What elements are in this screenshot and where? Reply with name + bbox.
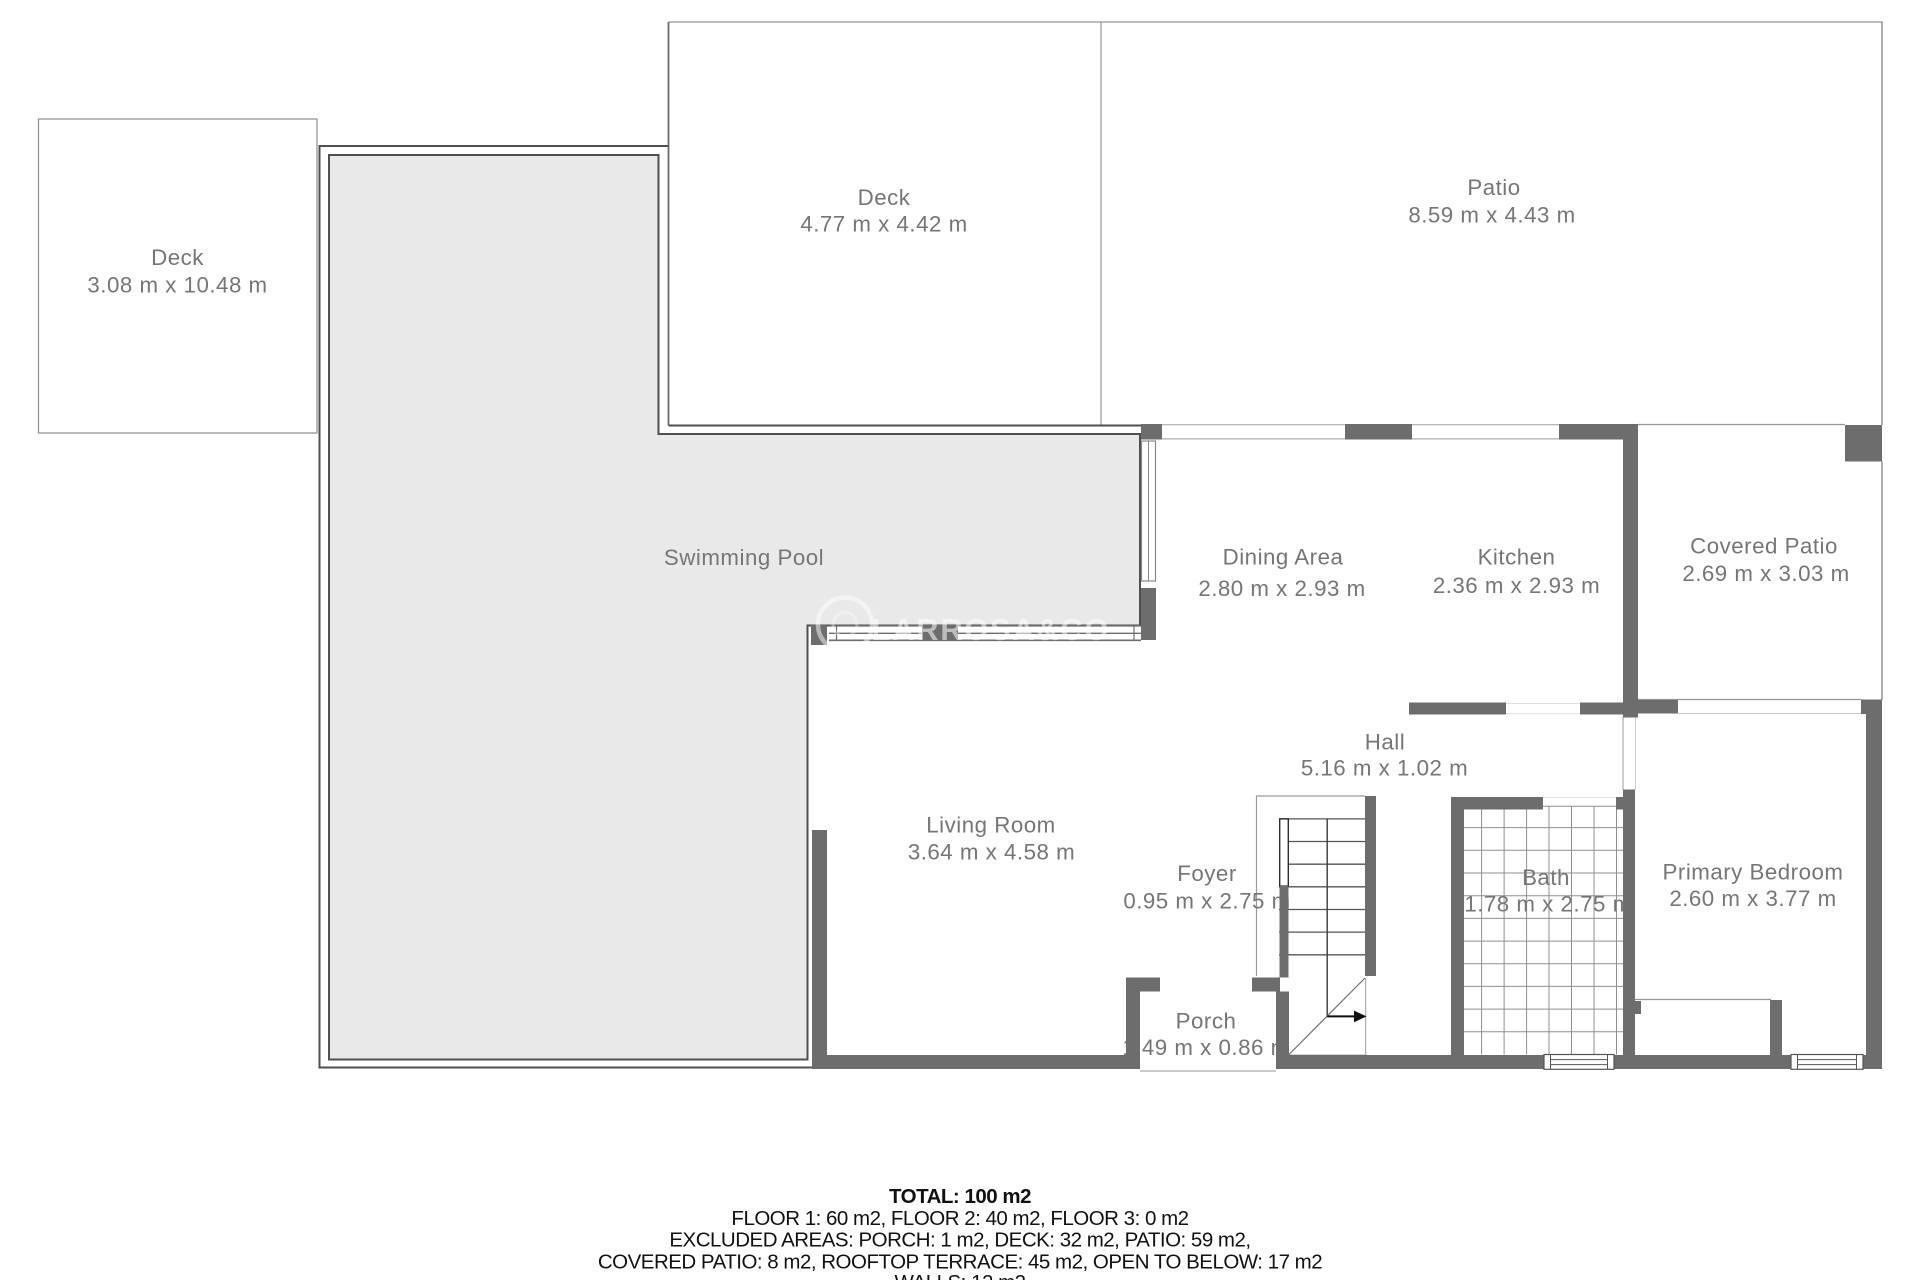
svg-text:4.77 m x 4.42 m: 4.77 m x 4.42 m	[800, 212, 967, 237]
svg-text:WALLS: 12 m2: WALLS: 12 m2	[894, 1271, 1025, 1280]
svg-text:Dining Area: Dining Area	[1223, 545, 1344, 570]
svg-text:COVERED PATIO: 8 m2, ROOFTOP T: COVERED PATIO: 8 m2, ROOFTOP TERRACE: 45…	[598, 1250, 1322, 1273]
svg-text:2.80 m x 2.93 m: 2.80 m x 2.93 m	[1198, 576, 1365, 601]
svg-text:2.60 m x 3.77 m: 2.60 m x 3.77 m	[1669, 886, 1836, 911]
svg-text:8.59 m x 4.43 m: 8.59 m x 4.43 m	[1408, 203, 1575, 228]
svg-text:5.16 m x 1.02 m: 5.16 m x 1.02 m	[1301, 756, 1468, 781]
svg-text:Hall: Hall	[1365, 730, 1405, 755]
svg-text:1.49 m x 0.86 m: 1.49 m x 0.86 m	[1122, 1035, 1289, 1060]
svg-text:Primary Bedroom: Primary Bedroom	[1663, 860, 1844, 885]
svg-text:Living Room: Living Room	[926, 813, 1055, 838]
svg-text:Covered Patio: Covered Patio	[1690, 534, 1838, 559]
svg-text:Deck: Deck	[858, 185, 911, 210]
svg-text:2.69 m x 3.03 m: 2.69 m x 3.03 m	[1682, 561, 1849, 586]
svg-text:0.95 m x 2.75 m: 0.95 m x 2.75 m	[1123, 889, 1290, 914]
svg-text:FLOOR 1: 60 m2, FLOOR 2: 40 m2: FLOOR 1: 60 m2, FLOOR 2: 40 m2, FLOOR 3:…	[731, 1207, 1188, 1230]
svg-text:Foyer: Foyer	[1177, 861, 1237, 886]
svg-text:Kitchen: Kitchen	[1478, 545, 1556, 570]
svg-text:Deck: Deck	[151, 245, 204, 270]
svg-text:EXCLUDED AREAS: PORCH: 1 m2, D: EXCLUDED AREAS: PORCH: 1 m2, DECK: 32 m2…	[669, 1229, 1250, 1252]
svg-text:Porch: Porch	[1176, 1009, 1237, 1034]
svg-text:LARROSA&CO: LARROSA&CO	[872, 613, 1111, 647]
svg-text:2.36 m x 2.93 m: 2.36 m x 2.93 m	[1433, 573, 1600, 598]
svg-text:Bath: Bath	[1522, 865, 1570, 890]
svg-text:3.08 m x 10.48 m: 3.08 m x 10.48 m	[87, 273, 267, 298]
svg-text:Patio: Patio	[1467, 175, 1520, 200]
svg-text:TOTAL: 100 m2: TOTAL: 100 m2	[889, 1185, 1031, 1208]
svg-text:1.78 m x 2.75 m: 1.78 m x 2.75 m	[1464, 892, 1631, 917]
svg-text:3.64 m x 4.58 m: 3.64 m x 4.58 m	[908, 840, 1075, 865]
svg-text:Swimming Pool: Swimming Pool	[664, 545, 824, 570]
